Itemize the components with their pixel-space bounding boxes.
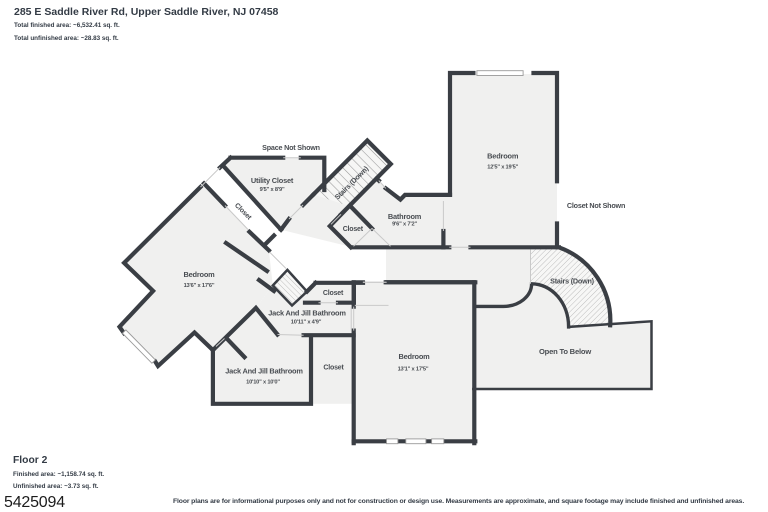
- svg-text:Utility Closet: Utility Closet: [251, 176, 294, 185]
- svg-text:Closet: Closet: [323, 365, 344, 372]
- svg-text:Bedroom: Bedroom: [398, 352, 430, 361]
- svg-text:Closet: Closet: [323, 290, 344, 297]
- svg-text:Bathroom: Bathroom: [388, 212, 422, 221]
- svg-text:Stairs (Down): Stairs (Down): [550, 277, 595, 286]
- svg-text:12'5" x 19'5": 12'5" x 19'5": [487, 165, 518, 171]
- svg-text:Closet Not Shown: Closet Not Shown: [567, 201, 625, 210]
- svg-text:Bedroom: Bedroom: [487, 152, 519, 161]
- svg-text:Closet: Closet: [343, 226, 364, 233]
- svg-text:Jack And Jill Bathroom: Jack And Jill Bathroom: [268, 309, 346, 318]
- svg-text:Jack And Jill Bathroom: Jack And Jill Bathroom: [225, 367, 303, 376]
- svg-text:10'11" x 4'9": 10'11" x 4'9": [291, 320, 322, 326]
- svg-text:10'10" x 10'0": 10'10" x 10'0": [246, 380, 280, 386]
- svg-text:13'1" x 17'5": 13'1" x 17'5": [398, 367, 429, 373]
- svg-text:13'6" x 17'6": 13'6" x 17'6": [184, 283, 215, 289]
- svg-text:Space Not Shown: Space Not Shown: [262, 143, 320, 152]
- svg-text:Open To Below: Open To Below: [539, 347, 591, 356]
- svg-text:9'6" x 7'2": 9'6" x 7'2": [392, 222, 417, 228]
- svg-text:Bedroom: Bedroom: [183, 270, 215, 279]
- svg-text:9'5" x 8'9": 9'5" x 8'9": [260, 187, 285, 193]
